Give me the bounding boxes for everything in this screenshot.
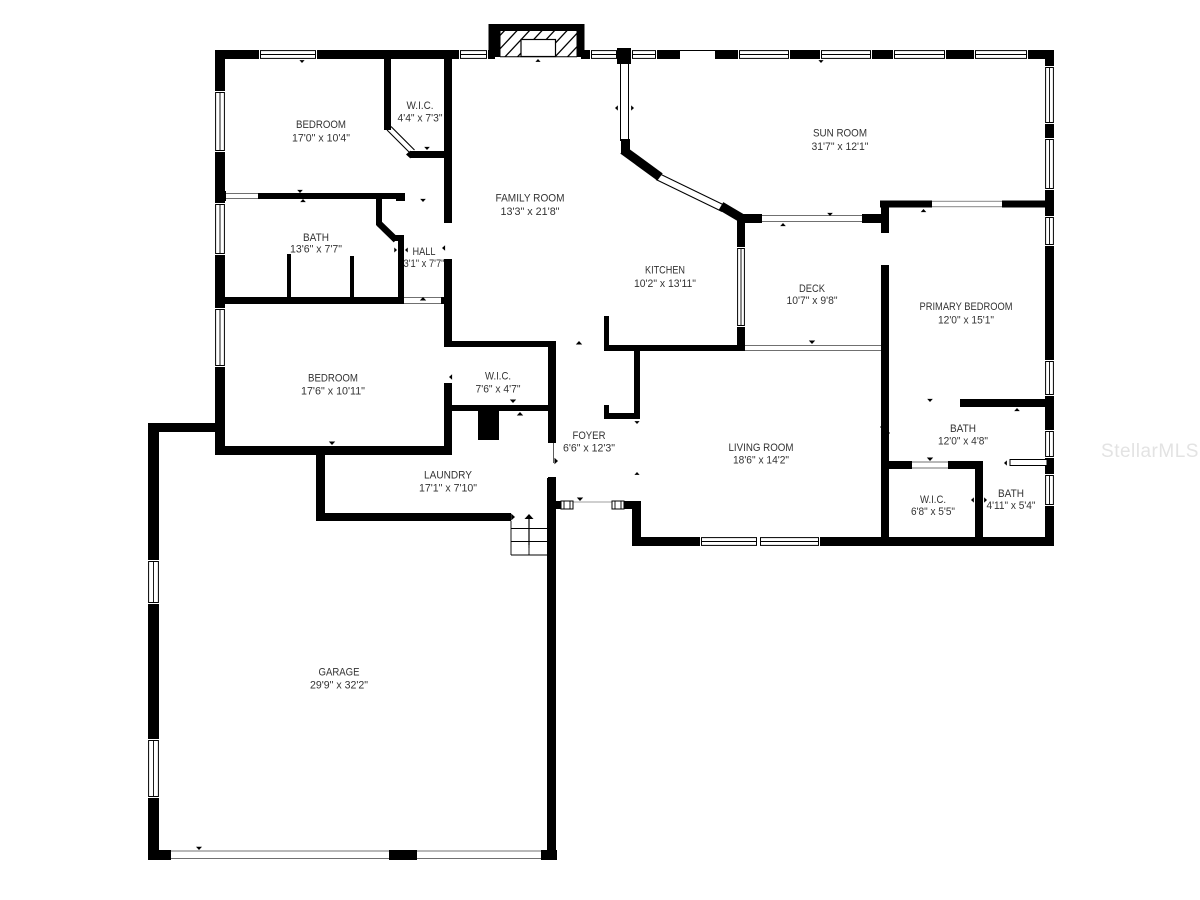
svg-text:17'1" x 7'10": 17'1" x 7'10" [419,483,477,495]
svg-text:LAUNDRY: LAUNDRY [424,470,473,482]
svg-text:12'0" x 4'8": 12'0" x 4'8" [938,436,988,448]
svg-text:DECK: DECK [799,283,826,295]
svg-text:BEDROOM: BEDROOM [296,119,346,131]
svg-text:18'6" x 14'2": 18'6" x 14'2" [733,455,789,467]
svg-text:13'6" x 7'7": 13'6" x 7'7" [290,244,342,256]
svg-text:BATH: BATH [950,423,976,435]
svg-text:17'0" x 10'4": 17'0" x 10'4" [292,133,350,145]
svg-text:W.I.C.: W.I.C. [920,494,946,506]
svg-text:KITCHEN: KITCHEN [645,265,685,277]
svg-text:6'8" x 5'5": 6'8" x 5'5" [911,506,955,518]
svg-text:4'11" x 5'4": 4'11" x 5'4" [987,500,1036,512]
svg-text:BEDROOM: BEDROOM [308,373,358,385]
svg-text:BATH: BATH [303,232,329,244]
svg-text:3'1" x 7'7": 3'1" x 7'7" [404,258,445,270]
svg-text:FOYER: FOYER [573,430,606,442]
svg-text:BATH: BATH [998,488,1024,500]
svg-text:FAMILY ROOM: FAMILY ROOM [496,193,565,205]
svg-text:W.I.C.: W.I.C. [407,100,434,112]
svg-text:31'7" x 12'1": 31'7" x 12'1" [812,141,869,153]
svg-text:SUN ROOM: SUN ROOM [813,128,867,140]
svg-text:10'7" x 9'8": 10'7" x 9'8" [787,295,838,307]
svg-text:10'2" x 13'11": 10'2" x 13'11" [634,278,696,290]
svg-text:29'9" x 32'2": 29'9" x 32'2" [310,680,368,692]
svg-text:StellarMLS: StellarMLS [1101,441,1199,462]
svg-text:17'6" x 10'11": 17'6" x 10'11" [301,386,365,398]
svg-text:W.I.C.: W.I.C. [485,371,511,383]
svg-text:HALL: HALL [413,246,436,258]
svg-text:LIVING ROOM: LIVING ROOM [729,442,794,454]
svg-text:13'3" x 21'8": 13'3" x 21'8" [501,206,560,218]
svg-text:6'6" x 12'3": 6'6" x 12'3" [563,443,615,455]
svg-text:4'4" x 7'3": 4'4" x 7'3" [398,113,443,125]
svg-text:GARAGE: GARAGE [319,667,360,679]
svg-text:PRIMARY BEDROOM: PRIMARY BEDROOM [920,301,1013,313]
svg-text:7'6" x 4'7": 7'6" x 4'7" [476,384,521,396]
svg-text:12'0" x 15'1": 12'0" x 15'1" [938,315,994,327]
